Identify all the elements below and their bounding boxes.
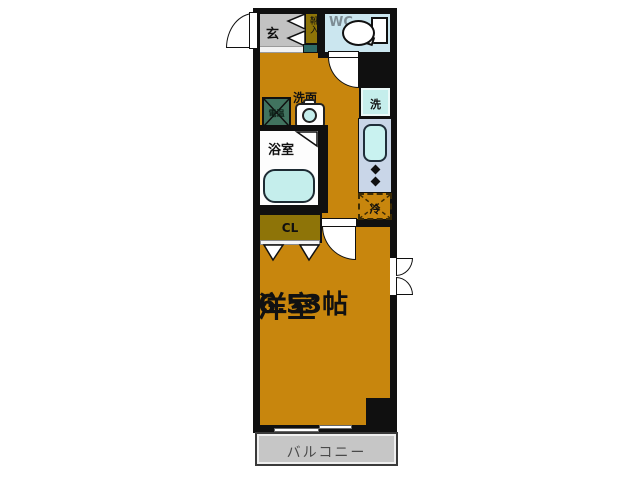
closet-label: CL xyxy=(260,221,320,235)
bathroom-label: 浴室 xyxy=(268,139,294,158)
washer-label: 洗 xyxy=(361,96,390,112)
refrigerator-label: 冷 xyxy=(360,201,390,217)
toilet-bowl-icon xyxy=(342,20,375,46)
wall-pipe-space xyxy=(358,52,397,87)
refrigerator-space: 冷 xyxy=(358,193,392,220)
balcony-label: バルコニー xyxy=(257,442,396,462)
shoe-cabinet: 靴入 xyxy=(305,13,318,44)
bathtub-icon xyxy=(263,169,315,203)
shoe-cabinet-counter xyxy=(303,44,318,53)
washbasin-bowl-icon xyxy=(302,108,317,123)
floorplan-canvas: 玄 靴入 WC 電温 洗面 浴室 xyxy=(0,0,640,480)
washer-space: 洗 xyxy=(359,86,392,118)
closet: CL xyxy=(258,213,322,243)
balcony: バルコニー xyxy=(255,432,398,466)
kitchen-counter xyxy=(358,118,392,193)
wall-top xyxy=(253,8,397,14)
water-heater-label: 電温 xyxy=(264,108,289,119)
water-heater: 電温 xyxy=(262,97,291,128)
kitchen-sink-icon xyxy=(363,124,387,162)
closet-folding-door-icon xyxy=(262,243,322,262)
wall-room-top xyxy=(356,219,397,227)
wall-notch xyxy=(366,398,397,432)
entry-door-leaf-icon xyxy=(249,12,258,49)
room-size-label: 6.53帖 xyxy=(258,291,348,320)
casement-window-icon xyxy=(396,258,413,276)
casement-window-icon xyxy=(396,277,413,295)
bathroom-door-icon xyxy=(296,131,320,148)
burner-icon xyxy=(371,177,381,187)
toilet-room: WC xyxy=(325,14,390,52)
bifold-door-icon xyxy=(286,13,306,47)
sliding-window-panel-icon xyxy=(319,425,352,429)
wall-wc-left xyxy=(318,8,325,58)
burner-icon xyxy=(371,165,381,175)
entrance-step xyxy=(260,46,307,53)
entrance-label: 玄 xyxy=(266,23,279,42)
